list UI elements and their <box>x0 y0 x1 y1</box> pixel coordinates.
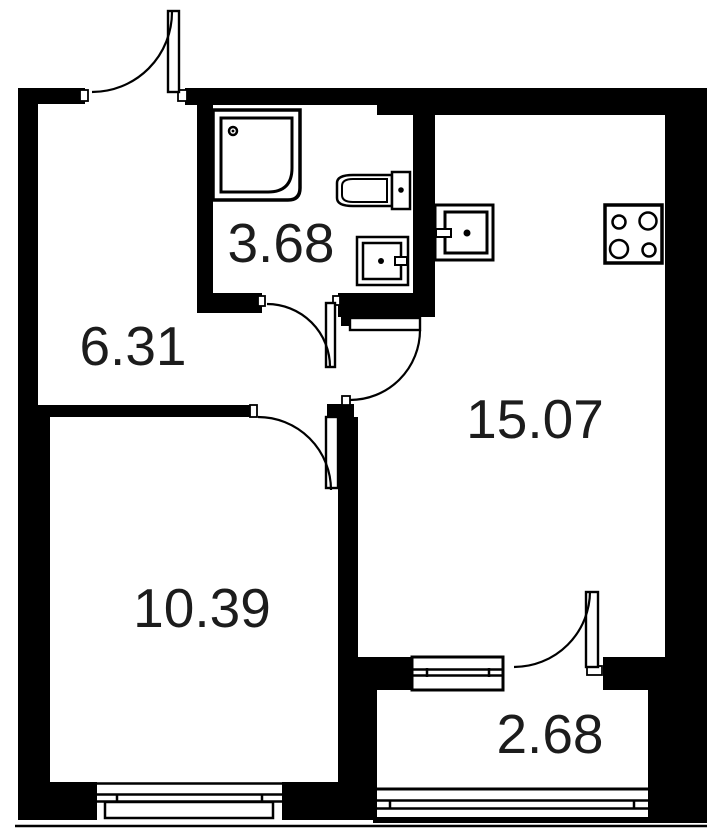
wall-bottom-west <box>18 782 97 820</box>
wall-bath-left <box>197 88 213 313</box>
door-jamb-bath-left <box>258 296 265 306</box>
wall-hall-bedroom <box>38 405 250 417</box>
toilet-tank-button <box>398 187 404 193</box>
wall-bedroom-kitchen <box>338 417 358 690</box>
floor-plan-page: 3.686.3110.3915.072.68 <box>0 0 719 831</box>
door-leaf-entry <box>168 11 179 92</box>
wall-right-balcony <box>648 657 707 823</box>
door-jamb-kitchen <box>342 396 350 405</box>
wall-balcony-left-corner <box>338 690 377 820</box>
kitchen-sink-tap <box>436 229 451 237</box>
bath-sink-drain <box>378 258 384 264</box>
wall-left-upper <box>18 88 38 405</box>
door-leaf-bath <box>326 303 335 367</box>
door-jamb-bedroom <box>250 405 257 417</box>
wall-right <box>665 88 707 657</box>
kitchen-sink-drain <box>464 230 471 237</box>
room-label-hallway: 6.31 <box>79 315 186 377</box>
wall-bedroom-door-hinge <box>327 404 354 417</box>
room-label-living-kitchen: 15.07 <box>466 388 604 450</box>
wall-bath-bottom-right <box>338 293 435 317</box>
bath-sink-tap <box>395 257 407 265</box>
wall-balcony-part-east <box>603 657 648 690</box>
wall-balcony-part-west <box>358 657 412 690</box>
room-label-bedroom: 10.39 <box>133 577 271 639</box>
window-bedroom-sill <box>105 802 273 818</box>
door-jamb-entry-left <box>80 90 88 101</box>
door-leaf-bedroom <box>326 417 338 488</box>
room-label-bathroom: 3.68 <box>227 212 334 274</box>
room-label-balcony: 2.68 <box>496 703 603 765</box>
railing-balcony-slab <box>373 817 648 823</box>
door-leaf-balcony <box>586 592 598 667</box>
door-leaf-kitchen <box>350 318 420 330</box>
wall-left-lower <box>18 405 50 820</box>
wall-bath-bottom-left <box>197 293 262 313</box>
wall-bath-right <box>413 88 435 317</box>
floor-plan-svg: 3.686.3110.3915.072.68 <box>0 0 719 831</box>
shower-drain-dot <box>232 130 235 133</box>
